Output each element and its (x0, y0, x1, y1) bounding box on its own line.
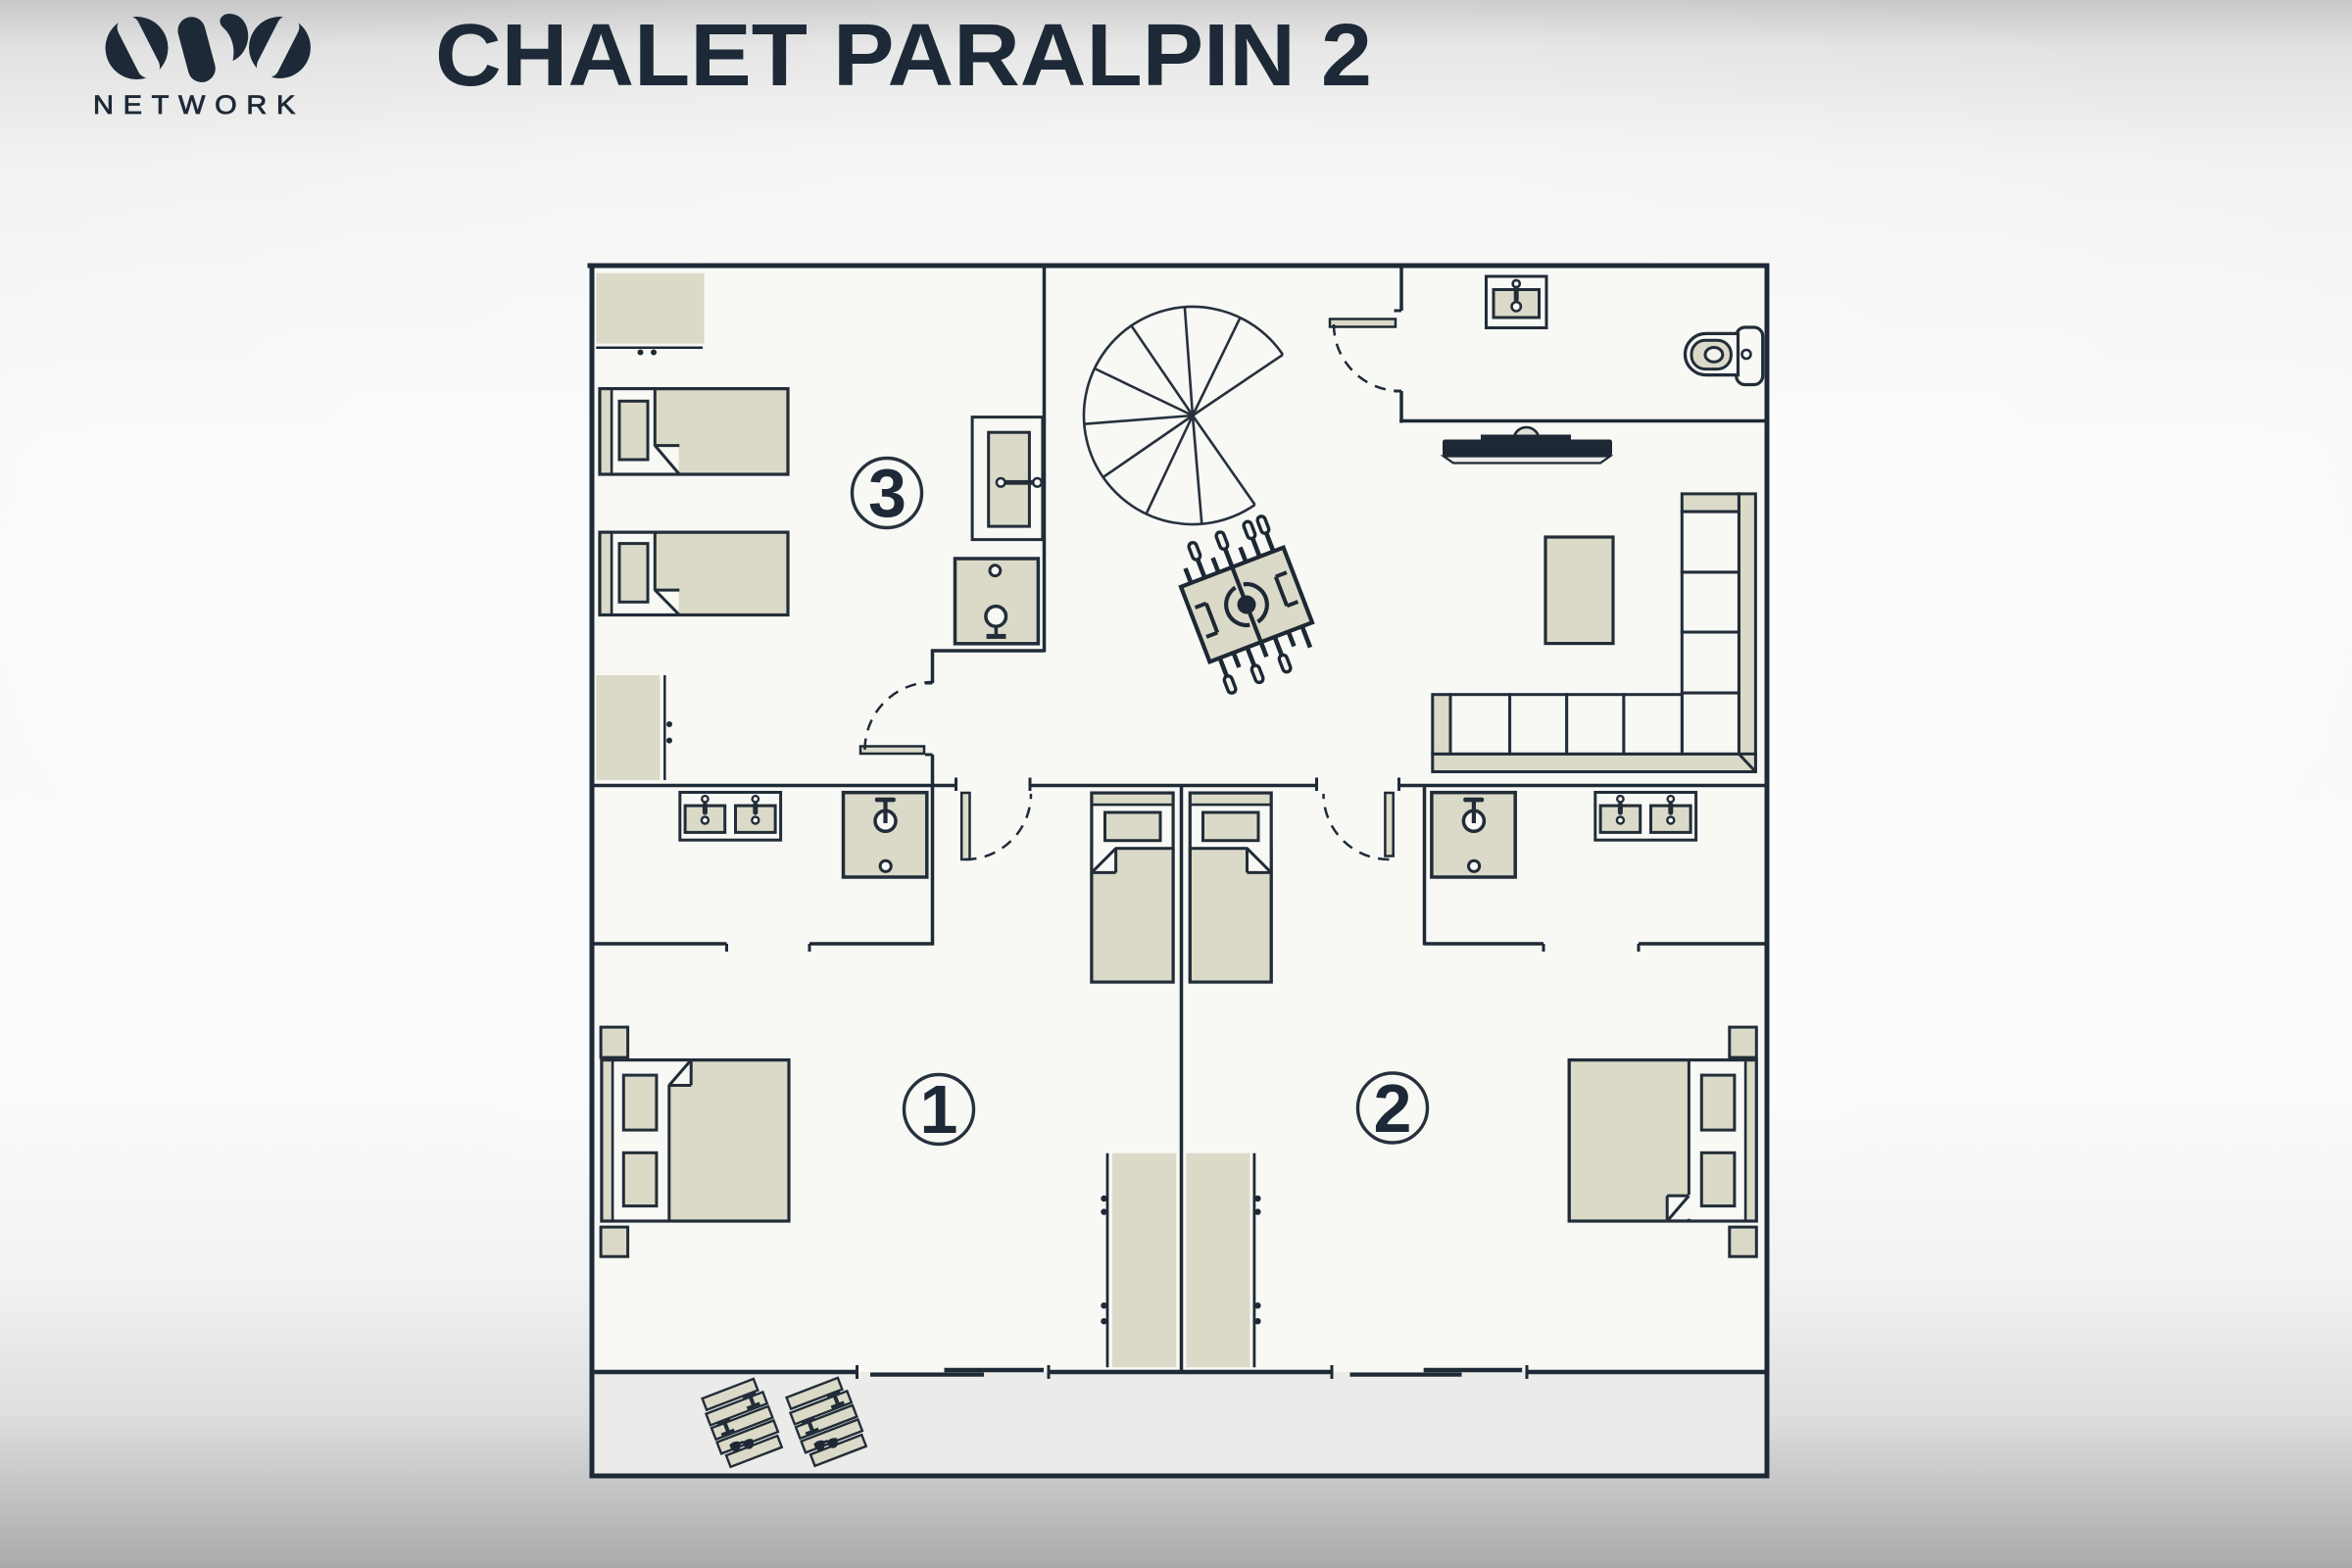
svg-text:2: 2 (1374, 1070, 1412, 1147)
svg-text:CHALET PARALPIN 2: CHALET PARALPIN 2 (435, 7, 1372, 105)
svg-text:3: 3 (868, 455, 906, 531)
svg-text:NETWORK: NETWORK (93, 90, 305, 120)
svg-text:1: 1 (920, 1071, 958, 1148)
